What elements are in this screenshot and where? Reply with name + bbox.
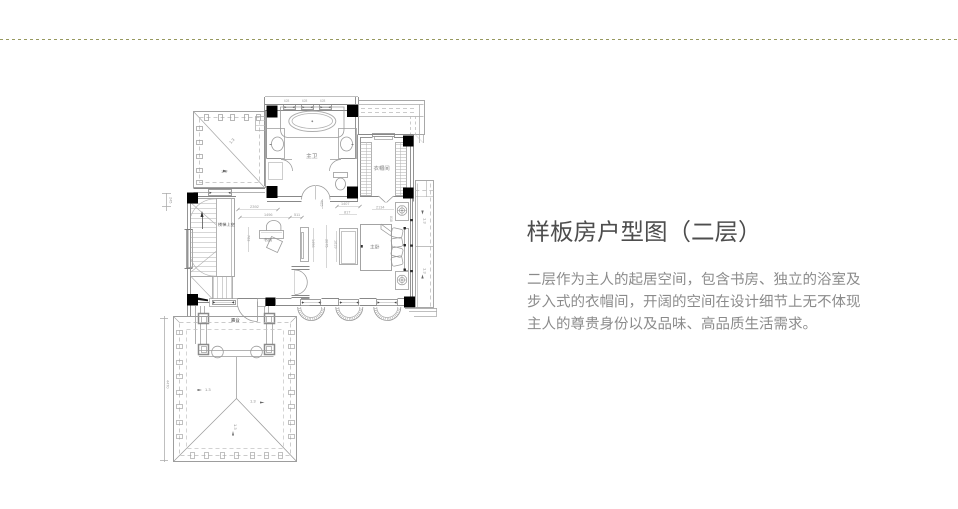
svg-text:465: 465: [320, 200, 324, 206]
svg-text:628: 628: [320, 99, 326, 103]
svg-text:1.3: 1.3: [233, 424, 238, 430]
svg-text:1.3: 1.3: [423, 268, 428, 274]
svg-text:818: 818: [389, 216, 393, 222]
svg-text:1.3: 1.3: [228, 137, 236, 145]
svg-text:245: 245: [169, 197, 173, 203]
svg-text:628: 628: [302, 99, 308, 103]
svg-text:1407: 1407: [341, 202, 349, 206]
svg-text:1.3: 1.3: [205, 387, 211, 392]
svg-text:2392: 2392: [250, 204, 260, 209]
svg-text:511: 511: [294, 213, 300, 217]
svg-text:4470: 4470: [166, 380, 170, 388]
svg-text:1496: 1496: [264, 213, 272, 217]
svg-text:763: 763: [247, 235, 251, 241]
svg-text:1.3: 1.3: [423, 218, 428, 224]
svg-text:628: 628: [284, 99, 290, 103]
svg-text:2134: 2134: [376, 206, 384, 210]
svg-text:1619: 1619: [334, 240, 338, 248]
svg-text:817: 817: [344, 211, 350, 215]
svg-text:1496: 1496: [311, 239, 315, 247]
svg-text:2075: 2075: [325, 239, 329, 247]
svg-text:1.3: 1.3: [250, 399, 256, 404]
